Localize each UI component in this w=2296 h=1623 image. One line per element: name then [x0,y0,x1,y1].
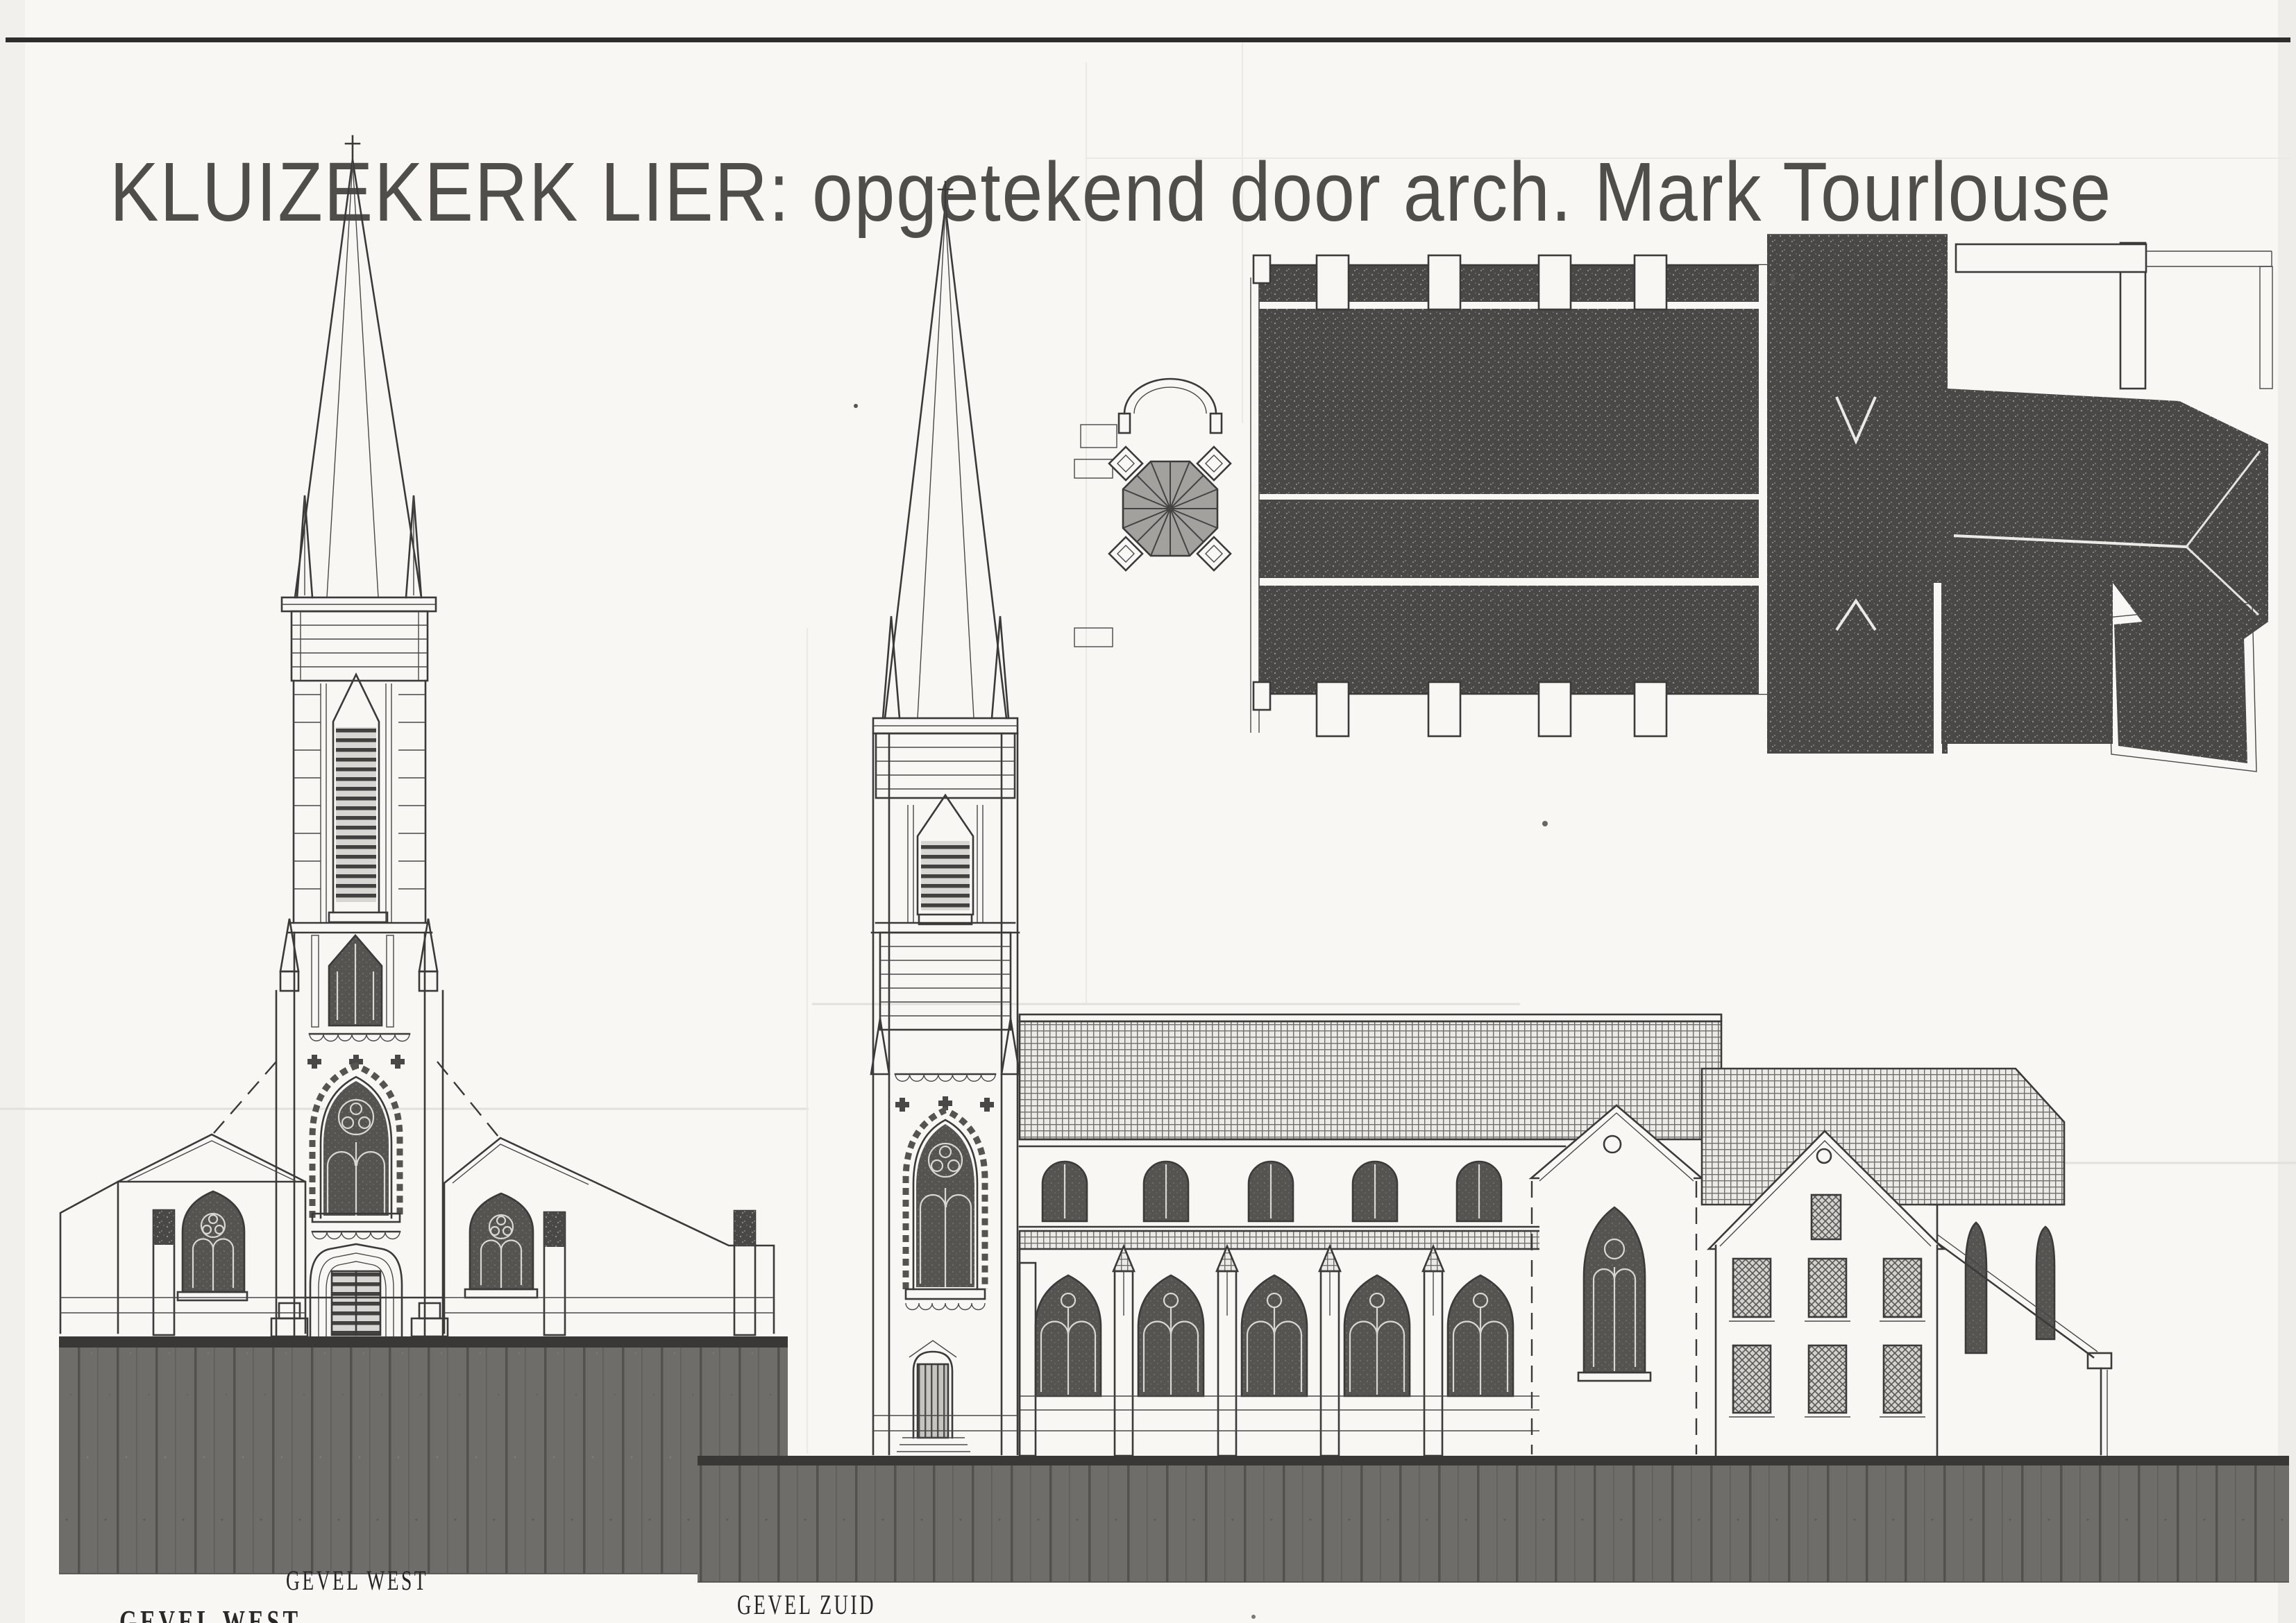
drawing-sheet: KLUIZEKERK LIER: opgetekend door arch. M… [0,0,2296,1623]
plan-annex-roof [2107,603,2256,772]
plan-nave-roof [1259,265,1767,694]
scanned-architectural-drawing: KLUIZEKERK LIER: opgetekend door arch. M… [0,0,2296,1623]
page-edge-shade-left [0,0,25,1623]
south-ground-wall [698,1456,2289,1582]
plan-octagon-spire [1123,461,1217,556]
west-elevation-label: GEVEL WEST [286,1565,428,1596]
page-edge-shade-right [2278,0,2296,1623]
cutoff-bottom-label: GEVEL WEST [119,1604,301,1623]
top-border-line [6,37,2290,42]
transept-gable [1531,1105,1702,1456]
aisle-roof [1020,1231,1555,1249]
plan-crossing [1759,235,1948,754]
west-ground-wall [59,1336,788,1574]
south-elevation-label: GEVEL ZUID [737,1589,876,1620]
page-title: KLUIZEKERK LIER: opgetekend door arch. M… [110,144,2112,239]
